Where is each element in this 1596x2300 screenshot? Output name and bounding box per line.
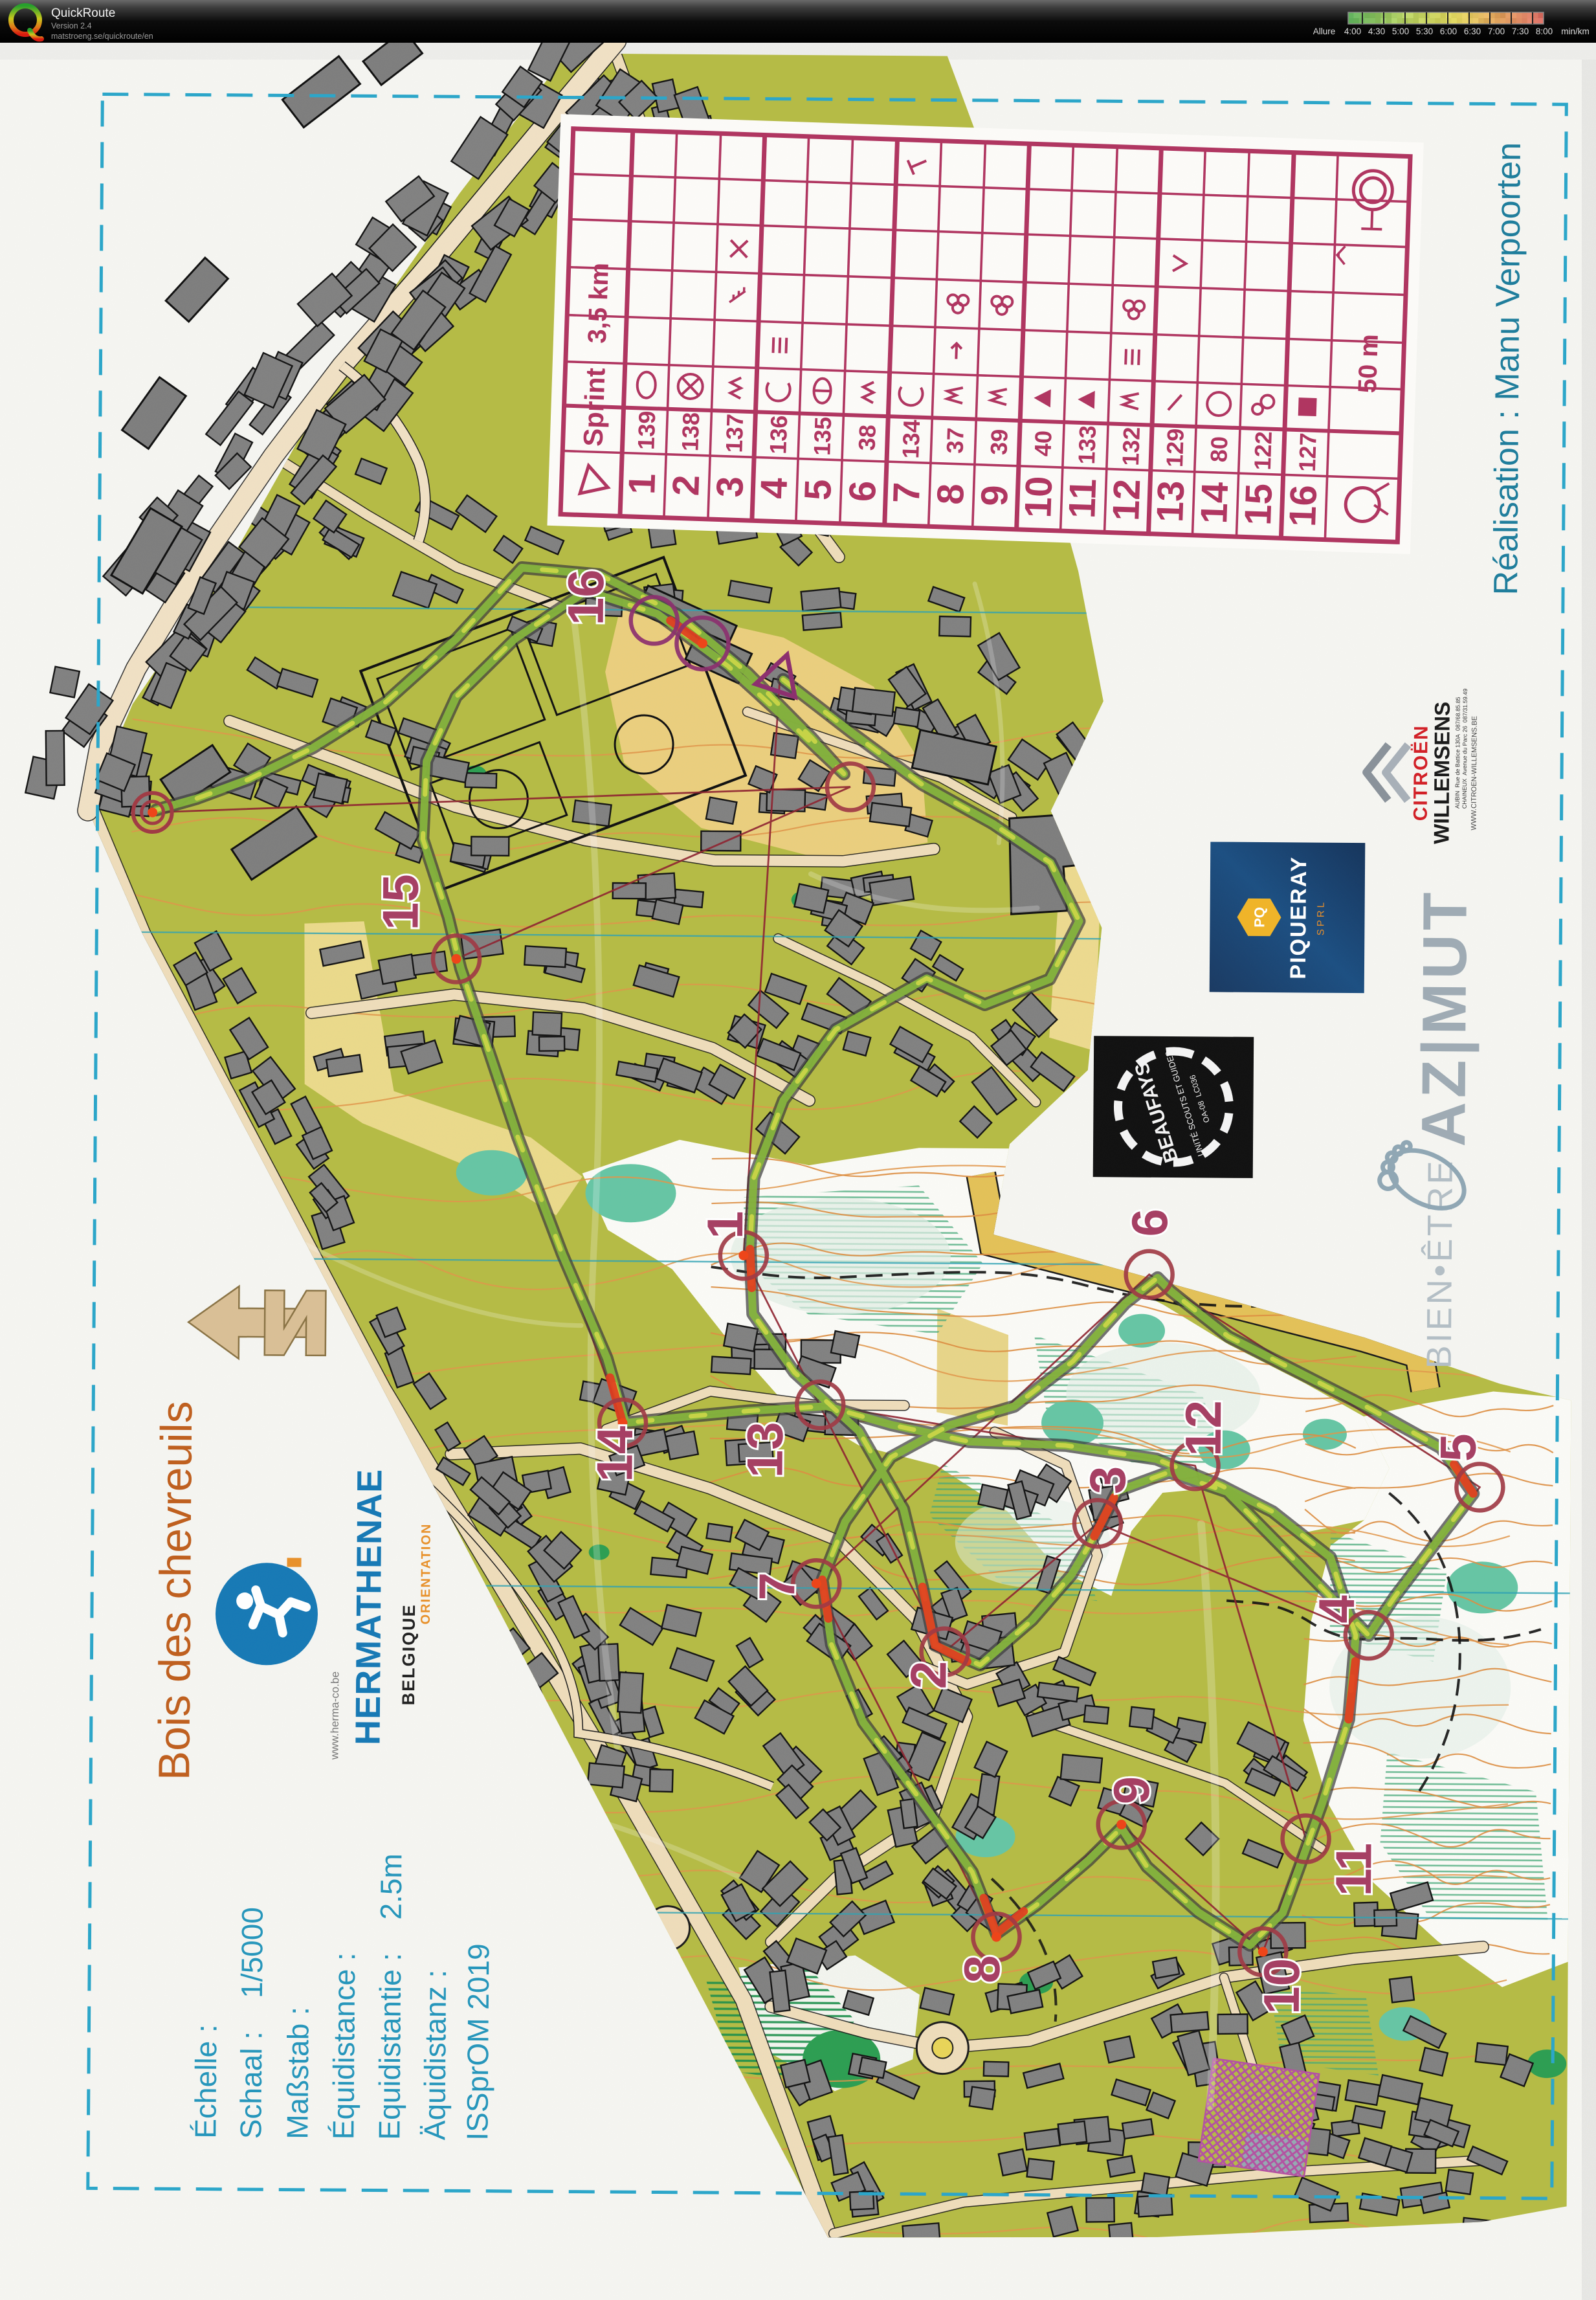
svg-text:8:00: 8:00: [1536, 27, 1553, 36]
svg-text:Version 2.4: Version 2.4: [51, 21, 92, 30]
svg-text:5:00: 5:00: [1392, 27, 1409, 36]
svg-text:Allure: Allure: [1313, 27, 1336, 36]
svg-text:5:30: 5:30: [1416, 27, 1433, 36]
svg-text:matstroeng.se/quickroute/en: matstroeng.se/quickroute/en: [51, 32, 153, 41]
svg-text:6:30: 6:30: [1464, 27, 1481, 36]
svg-text:4:30: 4:30: [1368, 27, 1385, 36]
svg-text:min/km: min/km: [1561, 27, 1590, 36]
svg-text:6:00: 6:00: [1440, 27, 1457, 36]
svg-text:4:00: 4:00: [1344, 27, 1361, 36]
svg-text:QuickRoute: QuickRoute: [51, 6, 115, 20]
svg-text:7:30: 7:30: [1512, 27, 1529, 36]
svg-text:7:00: 7:00: [1488, 27, 1505, 36]
